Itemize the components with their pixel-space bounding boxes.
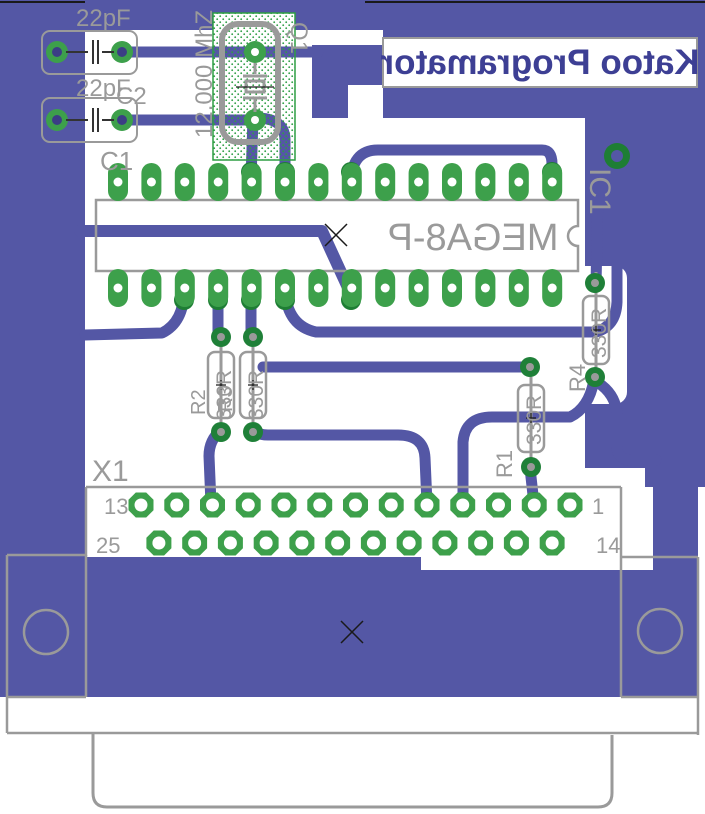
via [604,143,630,169]
r1-value-label: 330R [523,395,546,445]
ic-pad[interactable] [542,269,562,307]
connector-pad[interactable] [200,493,225,518]
connector-pad[interactable] [486,493,511,518]
ic-pad[interactable] [242,269,262,307]
ic-pad[interactable] [208,163,228,201]
pin1-label: 1 [592,494,604,519]
board-title: Katoo Programator [380,43,699,82]
resistor-pad[interactable] [243,327,263,347]
ic-pad[interactable] [308,269,328,307]
pin14-label: 14 [596,533,620,558]
ic-pad[interactable] [475,269,495,307]
connector-pad[interactable] [325,531,350,556]
ic-pad[interactable] [175,163,195,201]
resistor-pad[interactable] [585,273,605,293]
resistor-pad[interactable] [243,422,263,442]
pin13-label: 13 [104,494,128,519]
ic-pad[interactable] [175,269,195,307]
pcb-canvas: Katoo Programator 22pF 22pF C2 C1 12.000… [0,0,705,814]
connector-pad[interactable] [254,531,279,556]
r2-value-label: 330R [213,370,236,420]
ic-pad[interactable] [509,163,529,201]
ic-pad[interactable] [141,269,161,307]
connector-pad[interactable] [146,531,171,556]
connector-pad[interactable] [236,493,261,518]
connector-pad[interactable] [379,493,404,518]
ic-pad[interactable] [409,163,429,201]
ic-pad[interactable] [442,163,462,201]
crystal-ref-label: Q1 [285,22,312,54]
pcb-board-view: Katoo Programator 22pF 22pF C2 C1 12.000… [0,0,705,814]
connector-pad[interactable] [397,531,422,556]
ic-pad[interactable] [375,269,395,307]
resistor-pad[interactable] [521,457,541,477]
ic-ref-label: IC1 [583,168,616,215]
ic-pad[interactable] [442,269,462,307]
ic-pad[interactable] [475,163,495,201]
cap1-ref-label: C1 [100,146,133,176]
cap1-value-label: 22pF [76,5,131,32]
pin25-label: 25 [96,533,120,558]
connector-pad[interactable] [415,493,440,518]
r4-ref-label: R4 [565,364,590,392]
connector-pad[interactable] [272,493,297,518]
ic-pad[interactable] [542,163,562,201]
connector-pad[interactable] [522,493,547,518]
ic-pad[interactable] [409,269,429,307]
title-block: Katoo Programator [380,38,699,87]
connector-pad[interactable] [450,493,475,518]
connector-pad[interactable] [558,493,583,518]
ic-pad[interactable] [275,163,295,201]
ic-pad[interactable] [342,269,362,307]
copper-traces[interactable] [80,52,656,504]
cap2-ref-label: C2 [116,83,147,110]
connector-pad[interactable] [432,531,457,556]
ic-pad[interactable] [141,163,161,201]
connector-pads[interactable] [129,493,583,556]
connector-pad[interactable] [361,531,386,556]
ic-value-label: MEGA8-P [387,217,558,259]
r4-value-label: 330R [588,308,611,358]
ic-pad[interactable] [108,269,128,307]
connector-pad[interactable] [307,493,332,518]
ic-pad[interactable] [242,163,262,201]
resistor-pad[interactable] [520,357,540,377]
crystal-value-label: 12.000 MhZ [191,10,218,138]
r1-ref-label: R1 [492,450,517,478]
connector-pad[interactable] [504,531,529,556]
ic-pad[interactable] [375,163,395,201]
connector-pad[interactable] [343,493,368,518]
ic-pad[interactable] [308,163,328,201]
r3-value-label: 330R [245,370,268,420]
ic-pad[interactable] [342,163,362,201]
ic-pad[interactable] [208,269,228,307]
connector-pad[interactable] [129,493,154,518]
connector-pad[interactable] [218,531,243,556]
ic-pad[interactable] [509,269,529,307]
resistor-pad[interactable] [211,327,231,347]
connector-pad[interactable] [468,531,493,556]
connector-ref-label: X1 [92,455,129,488]
connector-pad[interactable] [540,531,565,556]
resistor-pad[interactable] [211,422,231,442]
connector-pad[interactable] [164,493,189,518]
connector-pad[interactable] [289,531,314,556]
r2-ref-label: R2 [188,389,210,415]
connector-pad[interactable] [182,531,207,556]
ic-pad[interactable] [275,269,295,307]
